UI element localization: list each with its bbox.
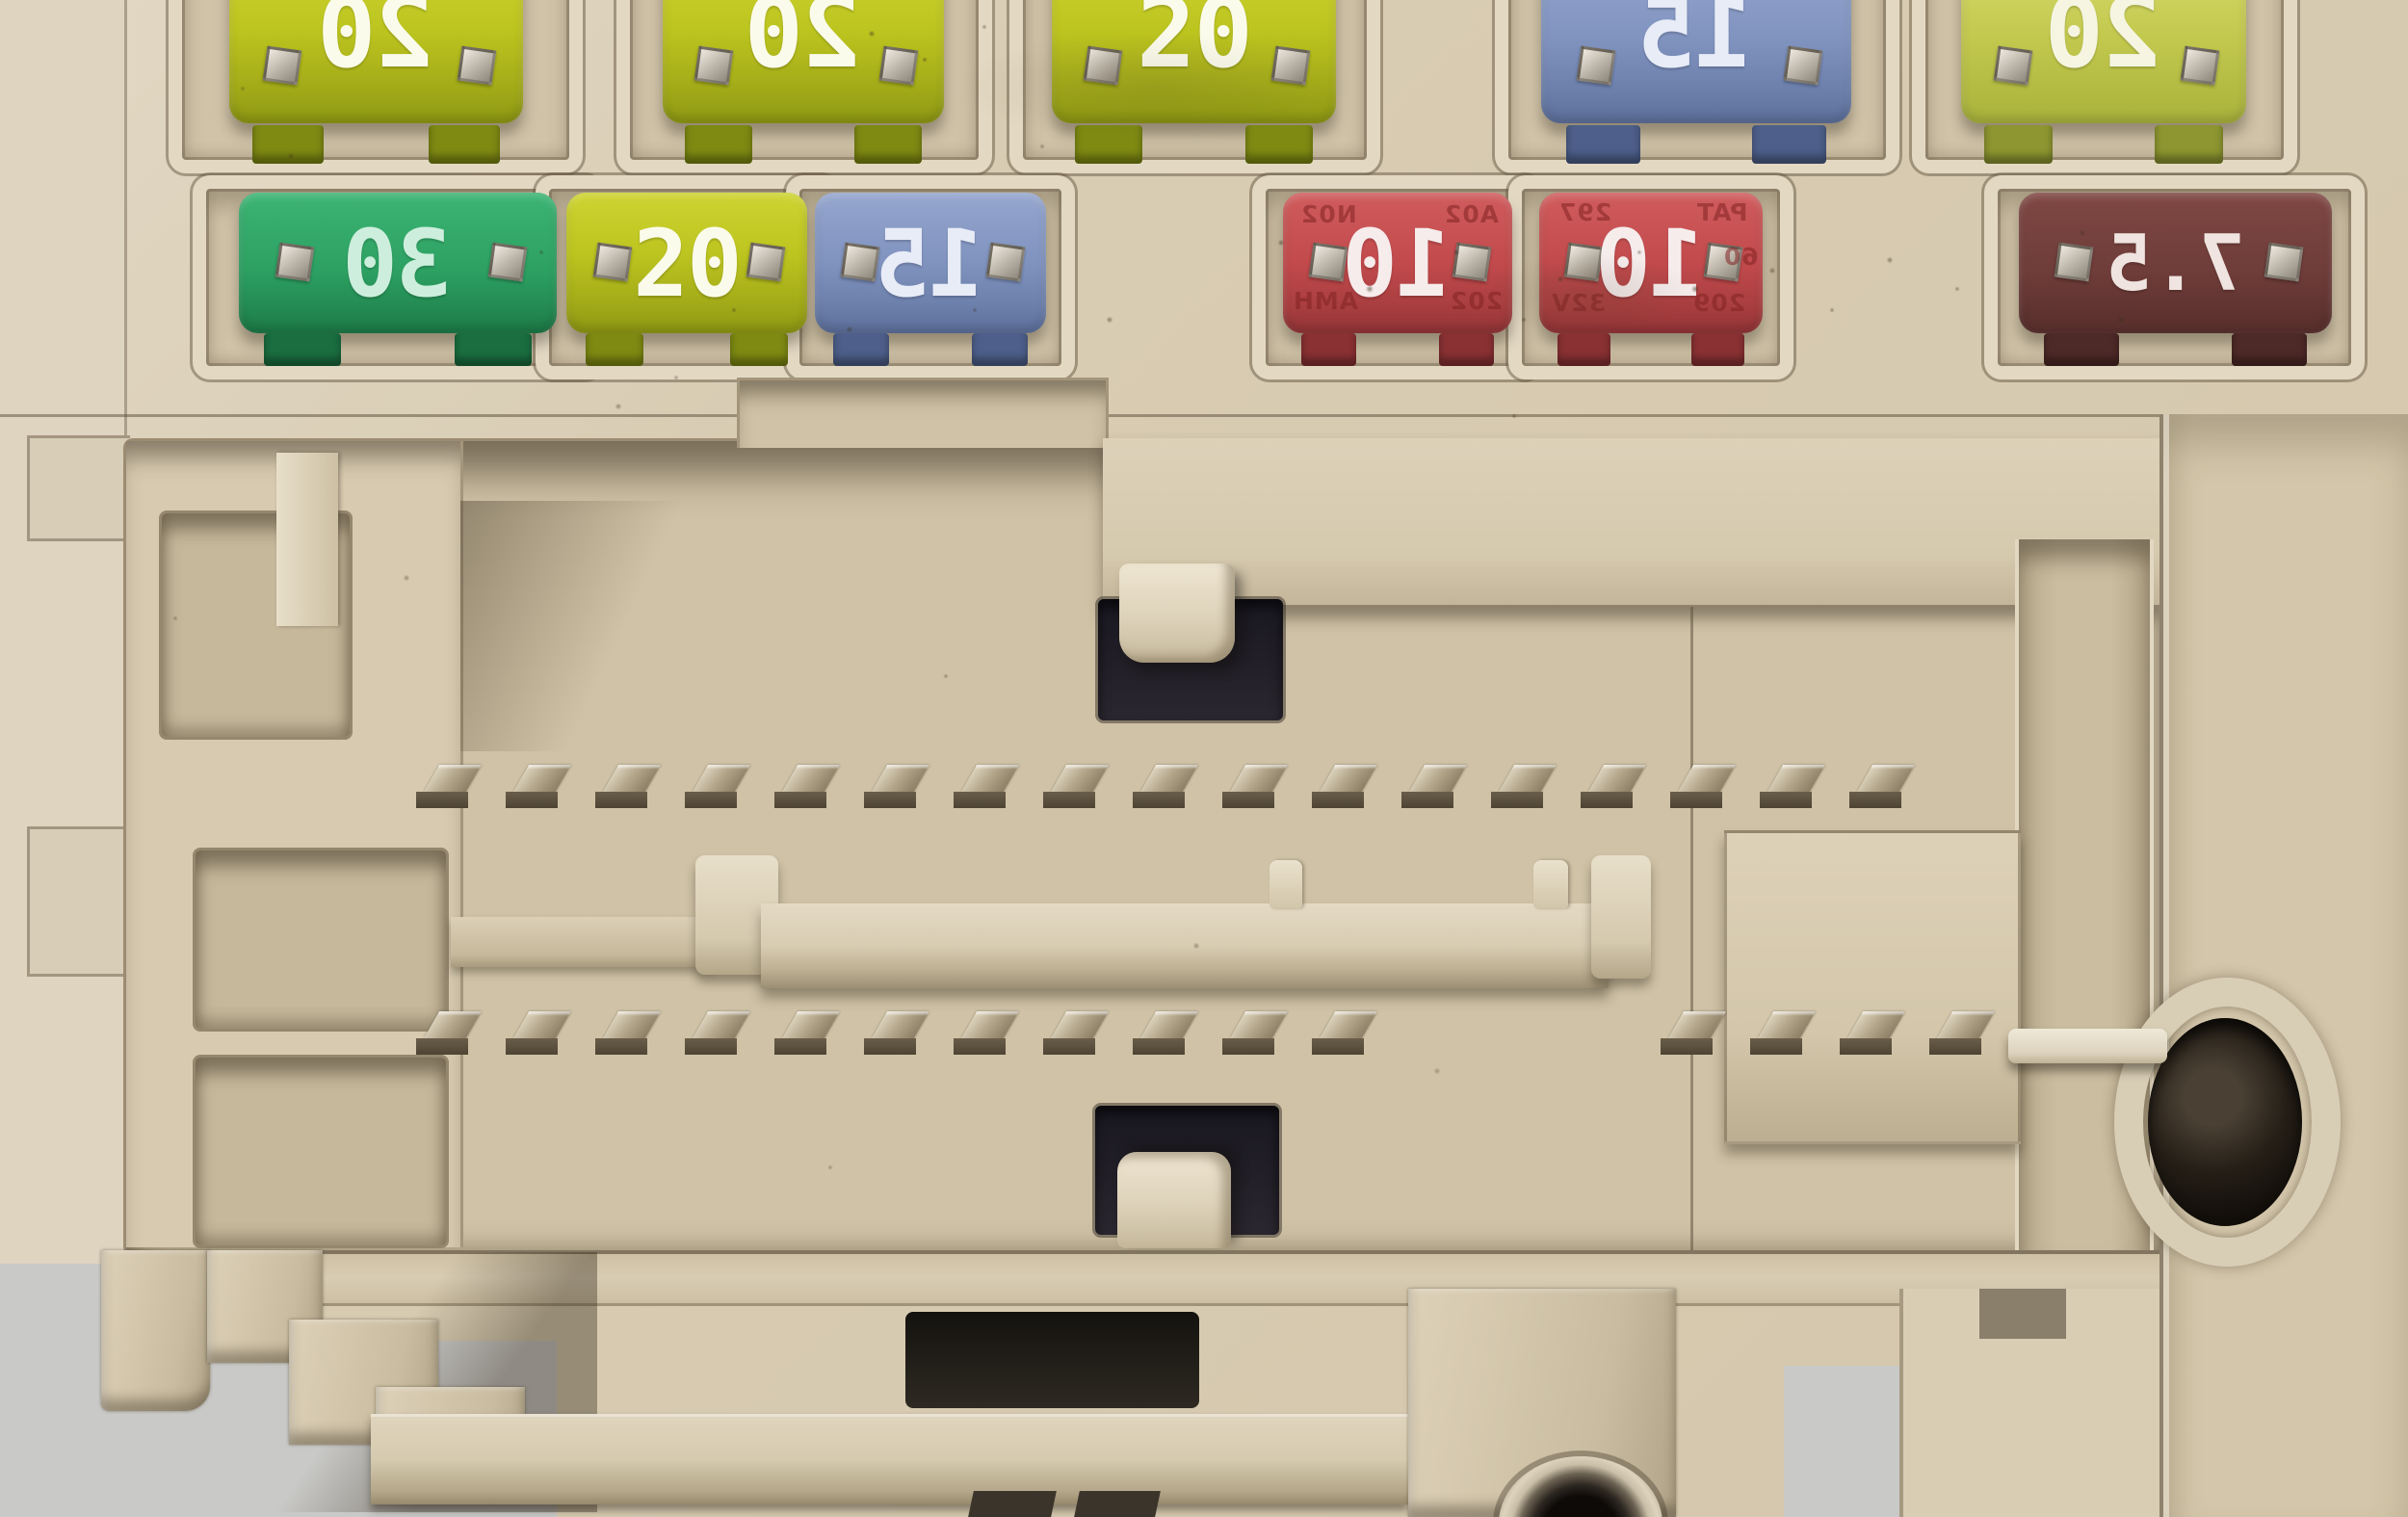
connector-pin — [1847, 763, 1907, 819]
connector-pin — [1758, 763, 1818, 819]
fuse-leg — [2044, 333, 2119, 366]
fuse-marking: A02 — [1444, 200, 1499, 228]
rail-ledge — [451, 917, 715, 967]
fuse-marking: PAT — [1696, 198, 1748, 226]
fuse-amperage-label: 20 — [1961, 0, 2246, 82]
connector-pin — [952, 1009, 1011, 1065]
fuse-marking: 60 — [1723, 243, 1759, 271]
connector-pin — [1041, 763, 1101, 819]
fuse-marking: 209 — [1692, 289, 1745, 317]
fuse-leg — [833, 333, 889, 366]
connector-pin — [683, 1009, 743, 1065]
fuse-amperage-label: 20 — [229, 0, 523, 82]
connector-pin — [414, 1009, 474, 1065]
pin-row-lower-left — [414, 1009, 1493, 1067]
fuse-marking: AMH — [1293, 287, 1358, 315]
fuse-leg — [429, 125, 499, 164]
alignment-peg-upper — [1119, 563, 1235, 663]
fuse-leg — [1439, 333, 1494, 366]
connector-pin — [1489, 763, 1549, 819]
fuse-leg — [730, 333, 788, 366]
pocket-opening — [193, 1055, 449, 1248]
connector-pin — [952, 763, 1011, 819]
housing-tab — [27, 435, 130, 541]
fuse-leg — [854, 125, 922, 164]
lower-slot — [905, 1312, 1199, 1408]
deck-seam — [0, 414, 2408, 417]
pocket-divider-ridge — [276, 453, 338, 626]
fuse-box-photo: 20 20 20 15 20 30 — [0, 0, 2408, 1517]
pin-row-lower-right — [1659, 1009, 2044, 1067]
wall-dirt — [2159, 414, 2408, 1517]
wall-shadow — [460, 501, 716, 751]
connector-pin — [1748, 1009, 1808, 1065]
connector-pin — [593, 1009, 653, 1065]
fuse-amperage-label: 15 — [1541, 0, 1851, 82]
connector-pin — [1838, 1009, 1898, 1065]
support-fin — [968, 1491, 1057, 1517]
fuse-leg — [1075, 125, 1143, 164]
fuse-10a: 10 N02 A02 AMH 202 — [1283, 193, 1512, 366]
connector-top-wall — [1103, 438, 2159, 609]
fuse-marking: N02 — [1300, 200, 1357, 228]
fuse-marking: 32V — [1551, 289, 1606, 317]
connector-pin — [504, 1009, 563, 1065]
connector-pin — [1131, 1009, 1191, 1065]
connector-pin — [1220, 763, 1280, 819]
connector-pin — [1041, 1009, 1101, 1065]
fuse-amperage-label: 20 — [1052, 0, 1336, 82]
housing-tab — [27, 826, 130, 977]
fuse-leg — [1301, 333, 1356, 366]
fuse-leg — [1566, 125, 1640, 164]
fuse-leg — [455, 333, 531, 366]
photo-background — [1784, 1366, 1899, 1517]
fuse-20a: 20 — [663, 0, 944, 164]
fuse-leg — [1557, 333, 1611, 366]
support-fin — [1074, 1491, 1161, 1517]
fuse-15a: 15 — [815, 193, 1046, 366]
fuse-7-5a: 7.5 — [2019, 193, 2332, 366]
fuse-marking: 297 — [1558, 198, 1611, 226]
fuse-leg — [685, 125, 752, 164]
fuse-amperage-label: 30 — [239, 218, 557, 310]
fuse-marking: 202 — [1450, 287, 1503, 315]
panel-notch — [1979, 1289, 2066, 1339]
connector-pin — [1659, 1009, 1718, 1065]
connector-pin — [504, 763, 563, 819]
connector-pin — [772, 763, 832, 819]
fuse-leg — [252, 125, 323, 164]
wall-crease — [1690, 607, 1693, 1250]
connector-pin — [1310, 1009, 1370, 1065]
mounting-hole — [2148, 1018, 2302, 1226]
fuse-amperage-label: 20 — [566, 218, 807, 310]
fuse-leg — [586, 333, 643, 366]
fuse-20a: 20 — [566, 193, 807, 366]
connector-pin — [772, 1009, 832, 1065]
fuse-leg — [1752, 125, 1826, 164]
connector-pin — [593, 763, 653, 819]
connector-pin — [1220, 1009, 1280, 1065]
pin-row-upper — [414, 763, 2032, 821]
connector-pin — [414, 763, 474, 819]
support-beam — [371, 1414, 1408, 1504]
fuse-15a: 15 — [1541, 0, 1851, 164]
left-housing-edge — [0, 0, 127, 1264]
cross-bar — [2008, 1029, 2167, 1063]
rail-nub — [1269, 860, 1302, 908]
fuse-leg — [2155, 125, 2223, 164]
fuse-leg — [2232, 333, 2307, 366]
fuse-20a: 20 — [229, 0, 523, 164]
housing-foot — [101, 1250, 210, 1411]
pocket-opening — [193, 848, 449, 1032]
connector-pin — [683, 763, 743, 819]
connector-pin — [1131, 763, 1191, 819]
alignment-peg-lower — [1117, 1152, 1231, 1248]
connector-pin — [1579, 763, 1638, 819]
fuse-amperage-label: 20 — [663, 0, 944, 82]
connector-pin — [1400, 763, 1459, 819]
fuse-leg — [264, 333, 340, 366]
fuse-amperage-label: 15 — [815, 218, 1046, 310]
connector-pin — [862, 763, 922, 819]
connector-pin — [1927, 1009, 1987, 1065]
fuse-leg — [972, 333, 1028, 366]
fuse-leg — [1245, 125, 1314, 164]
fuse-amperage-label: 7.5 — [2019, 218, 2332, 310]
key-rail — [761, 903, 1609, 988]
fuse-10a: 10 297 PAT 60 32V 209 — [1539, 193, 1763, 366]
fuse-20a: 20 — [1961, 0, 2246, 164]
connector-pin — [862, 1009, 922, 1065]
connector-pin — [1668, 763, 1728, 819]
right-cavity-block — [1724, 830, 2021, 1144]
rail-nub — [1533, 860, 1568, 908]
fuse-20a: 20 — [1052, 0, 1336, 164]
connector-top-notch — [737, 378, 1109, 448]
fuse-leg — [1984, 125, 2053, 164]
rail-end-cap — [1591, 855, 1651, 979]
fuse-leg — [1691, 333, 1745, 366]
connector-pin — [1310, 763, 1370, 819]
fuse-30a: 30 — [239, 193, 557, 366]
